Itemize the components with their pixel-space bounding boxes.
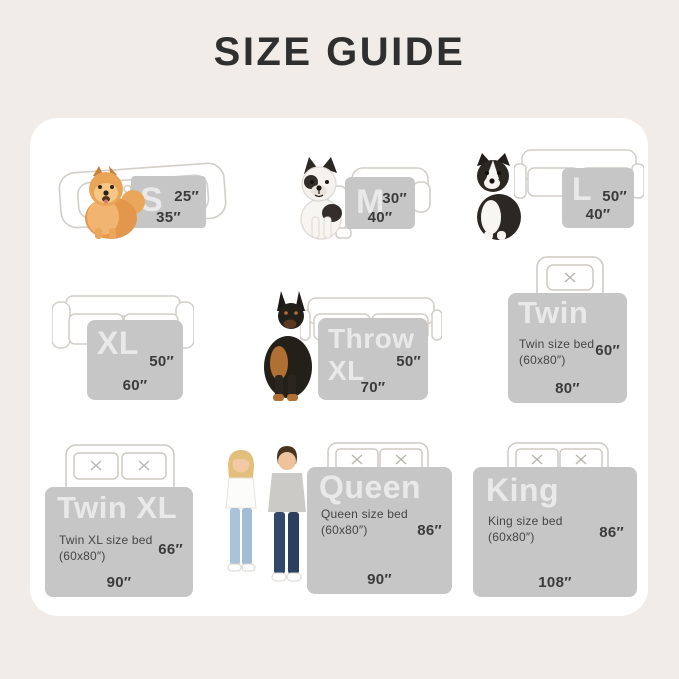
couple-illustration xyxy=(218,444,314,596)
side-length: 86″ xyxy=(599,524,624,541)
size-letter: Twin xyxy=(518,297,588,328)
bottom-width: 40″ xyxy=(562,206,634,223)
page-title: SIZE GUIDE xyxy=(0,30,679,75)
bed-type: King size bed xyxy=(488,514,563,528)
border-collie-illustration xyxy=(466,149,528,241)
doberman-illustration xyxy=(254,289,320,402)
blanket-size-twin-xl: Twin XL Twin XL size bed (60x80″) 66″ 90… xyxy=(45,487,193,597)
bed-type: Twin XL size bed xyxy=(59,533,152,547)
bottom-width: 70″ xyxy=(318,379,428,396)
french-bulldog-illustration xyxy=(291,157,349,241)
side-length: 86″ xyxy=(417,522,442,539)
pomeranian-dog-illustration xyxy=(76,164,146,240)
side-length: 50″ xyxy=(396,353,421,370)
size-letter: XL xyxy=(97,327,139,359)
size-letter: L xyxy=(572,173,592,205)
bottom-width: 40″ xyxy=(345,209,415,226)
bed-dimensions: (60x80″) xyxy=(519,353,566,367)
side-length: 66″ xyxy=(158,541,183,558)
bottom-width: 90″ xyxy=(307,571,452,588)
bed-subtitle: Twin XL size bed (60x80″) xyxy=(59,533,152,564)
blanket-size-throw-xl: Throw XL 50″ 70″ xyxy=(318,318,428,400)
side-length: 50″ xyxy=(149,353,174,370)
blanket-size-queen: Queen Queen size bed (60x80″) 86″ 90″ xyxy=(307,467,452,594)
bed-type: Queen size bed xyxy=(321,507,408,521)
side-length: 60″ xyxy=(595,342,620,359)
bottom-width: 108″ xyxy=(473,574,637,591)
size-letter: Twin XL xyxy=(57,492,177,523)
bed-dimensions: (60x80″) xyxy=(488,530,535,544)
blanket-size-xl: XL 50″ 60″ xyxy=(87,320,183,400)
blanket-size-twin: Twin Twin size bed (60x80″) 60″ 80″ xyxy=(508,293,627,403)
blanket-size-l: L 50″ 40″ xyxy=(562,168,634,228)
bed-subtitle: King size bed (60x80″) xyxy=(488,514,563,545)
bottom-width: 60″ xyxy=(87,377,183,394)
side-length: 25″ xyxy=(174,188,199,205)
bottom-width: 90″ xyxy=(45,574,193,591)
bed-subtitle: Twin size bed (60x80″) xyxy=(519,337,594,368)
blanket-size-m: M 30″ 40″ xyxy=(345,177,415,229)
size-guide-infographic: SIZE GUIDE S 25″ 35″ xyxy=(0,0,679,679)
bed-dimensions: (60x80″) xyxy=(321,523,368,537)
size-letter: King xyxy=(486,474,559,506)
bed-type: Twin size bed xyxy=(519,337,594,351)
bottom-width: 80″ xyxy=(508,380,627,397)
bed-dimensions: (60x80″) xyxy=(59,549,106,563)
blanket-size-king: King King size bed (60x80″) 86″ 108″ xyxy=(473,467,637,597)
bed-subtitle: Queen size bed (60x80″) xyxy=(321,507,408,538)
side-length: 30″ xyxy=(382,190,407,207)
size-letter: Queen xyxy=(319,471,421,503)
side-length: 50″ xyxy=(602,188,627,205)
